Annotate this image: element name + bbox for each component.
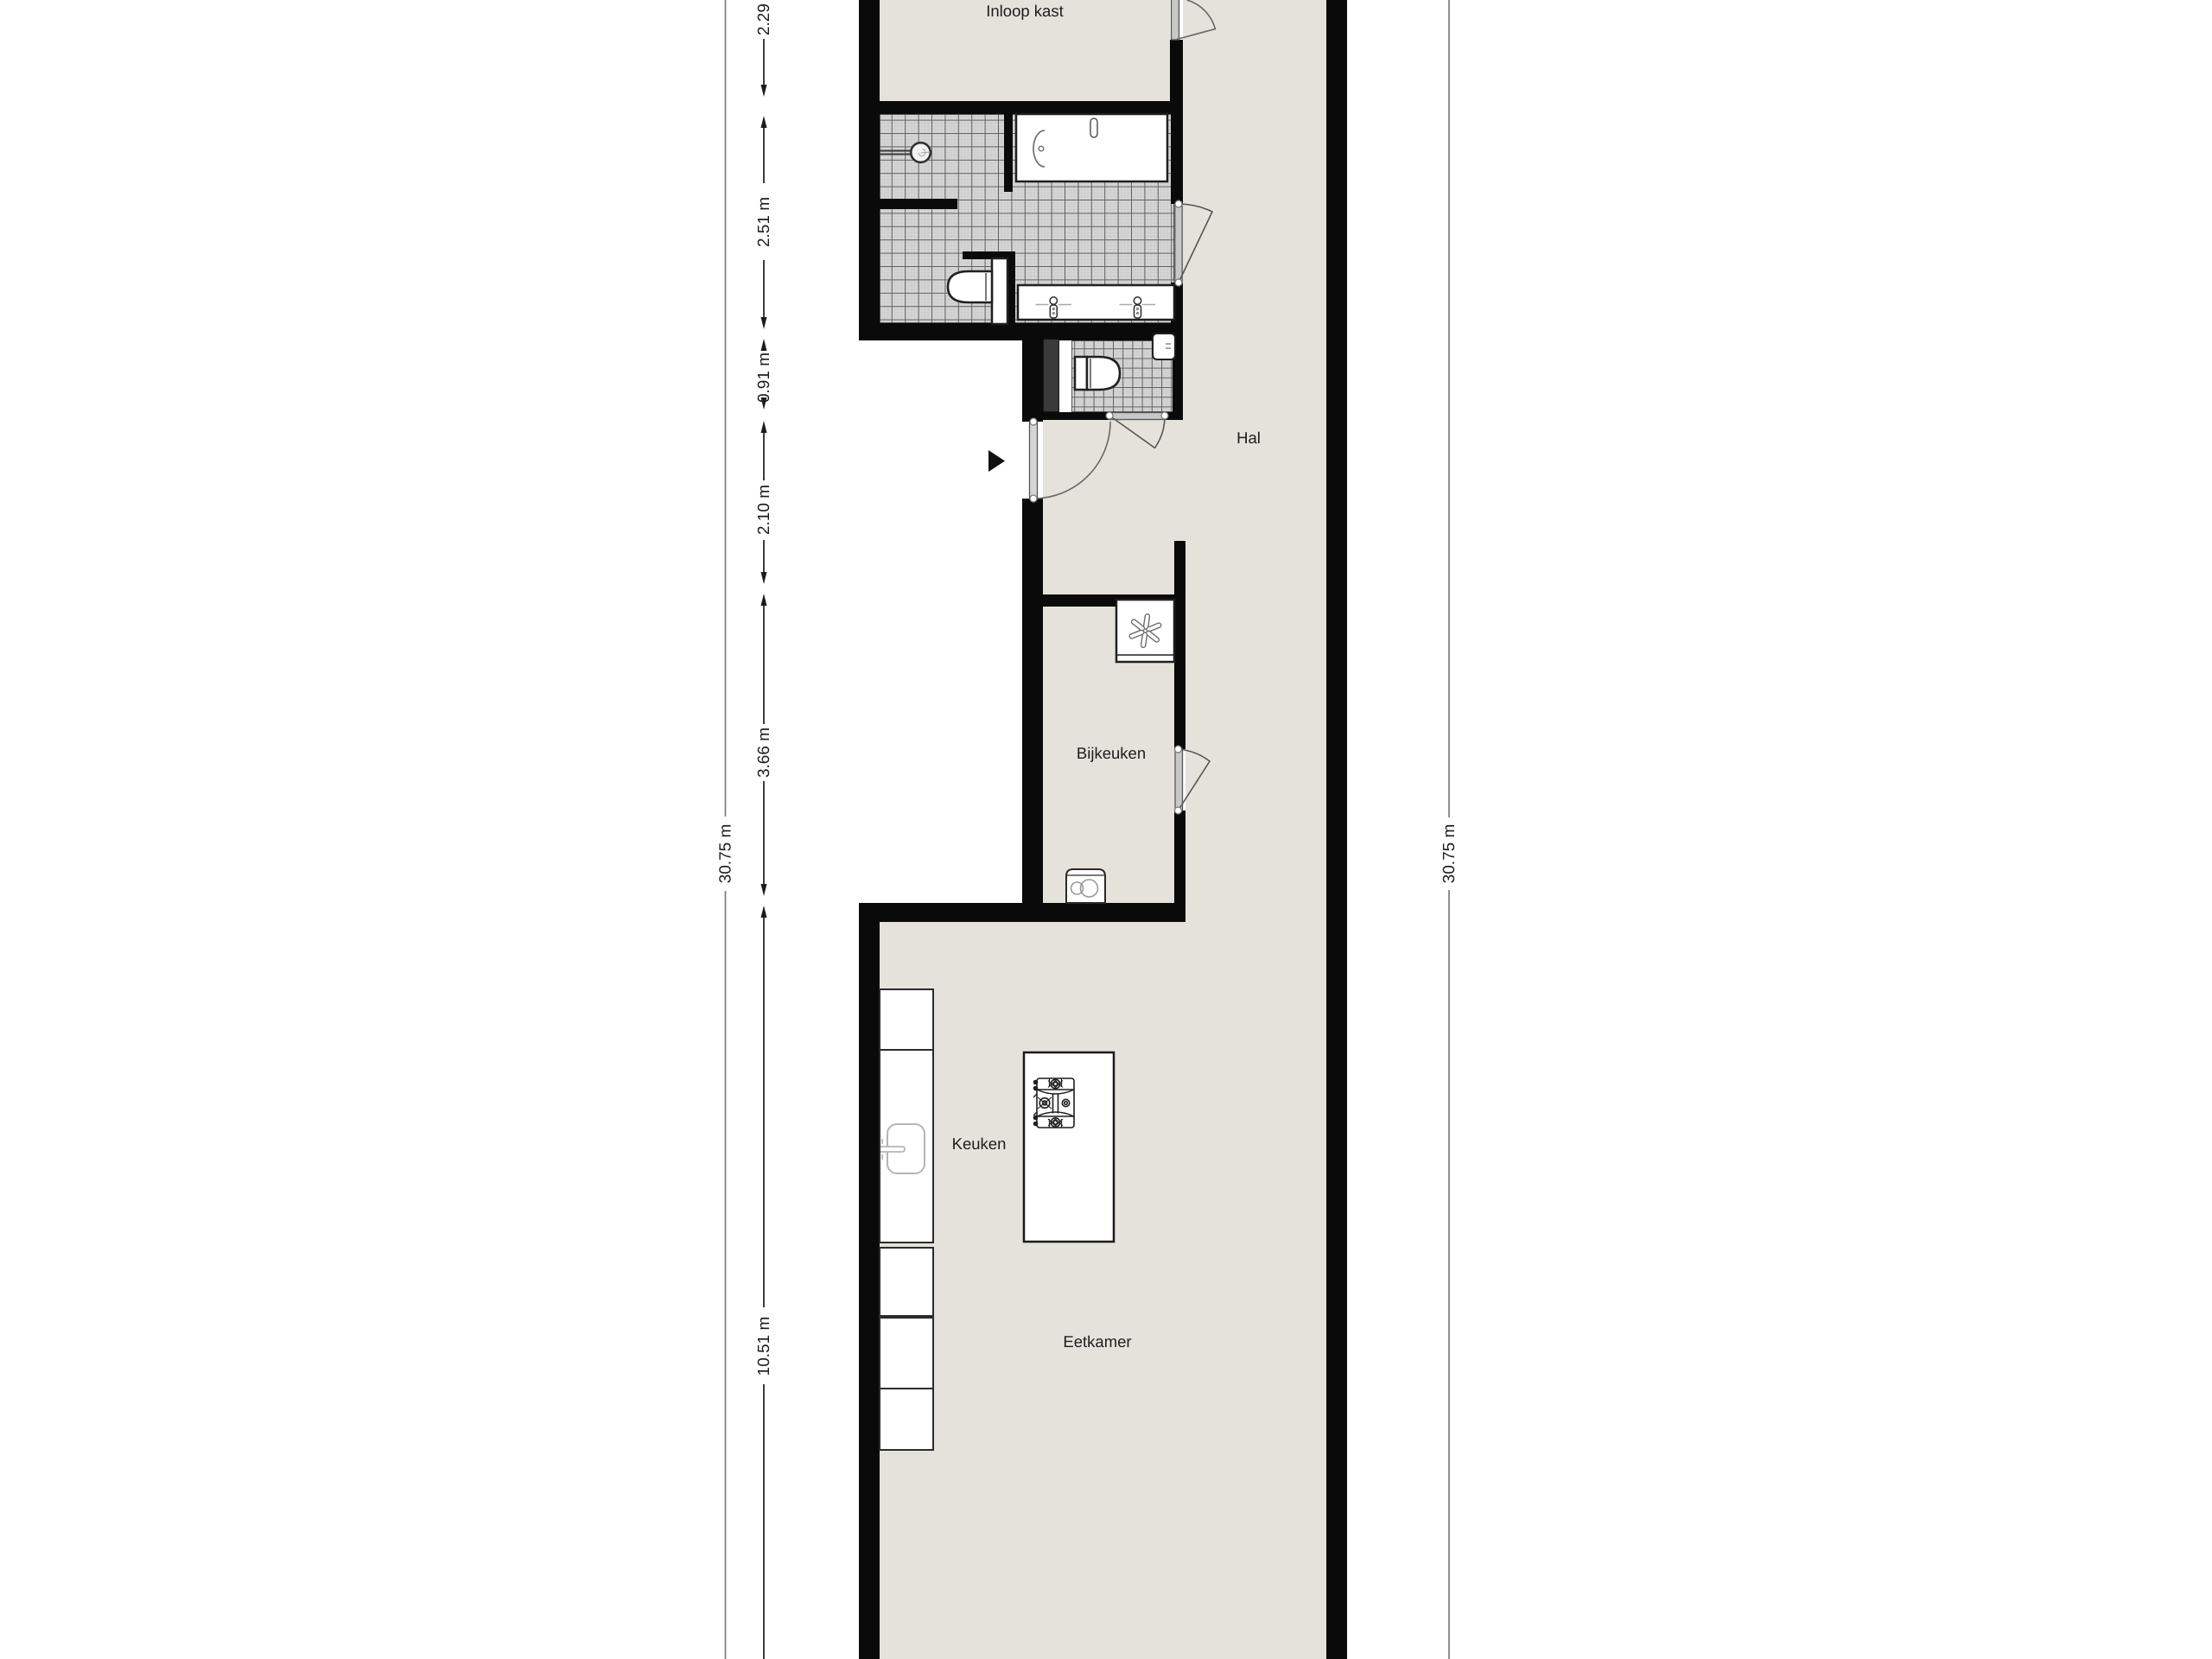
svg-text:2.29 m: 2.29 m [755,0,773,35]
svg-text:Bijkeuken: Bijkeuken [1077,744,1146,762]
svg-text:Inloop kast: Inloop kast [986,2,1063,20]
svg-text:30.75 m: 30.75 m [717,824,735,884]
svg-text:2.10 m: 2.10 m [755,485,773,535]
svg-text:Hal: Hal [1236,429,1261,447]
svg-text:Keuken: Keuken [952,1135,1007,1153]
svg-text:10.51 m: 10.51 m [755,1317,773,1376]
svg-text:Eetkamer: Eetkamer [1063,1332,1131,1351]
svg-text:30.75 m: 30.75 m [1440,824,1459,884]
svg-text:2.51 m: 2.51 m [755,197,773,247]
svg-text:0.91 m: 0.91 m [755,353,773,403]
svg-text:3.66 m: 3.66 m [755,728,773,778]
